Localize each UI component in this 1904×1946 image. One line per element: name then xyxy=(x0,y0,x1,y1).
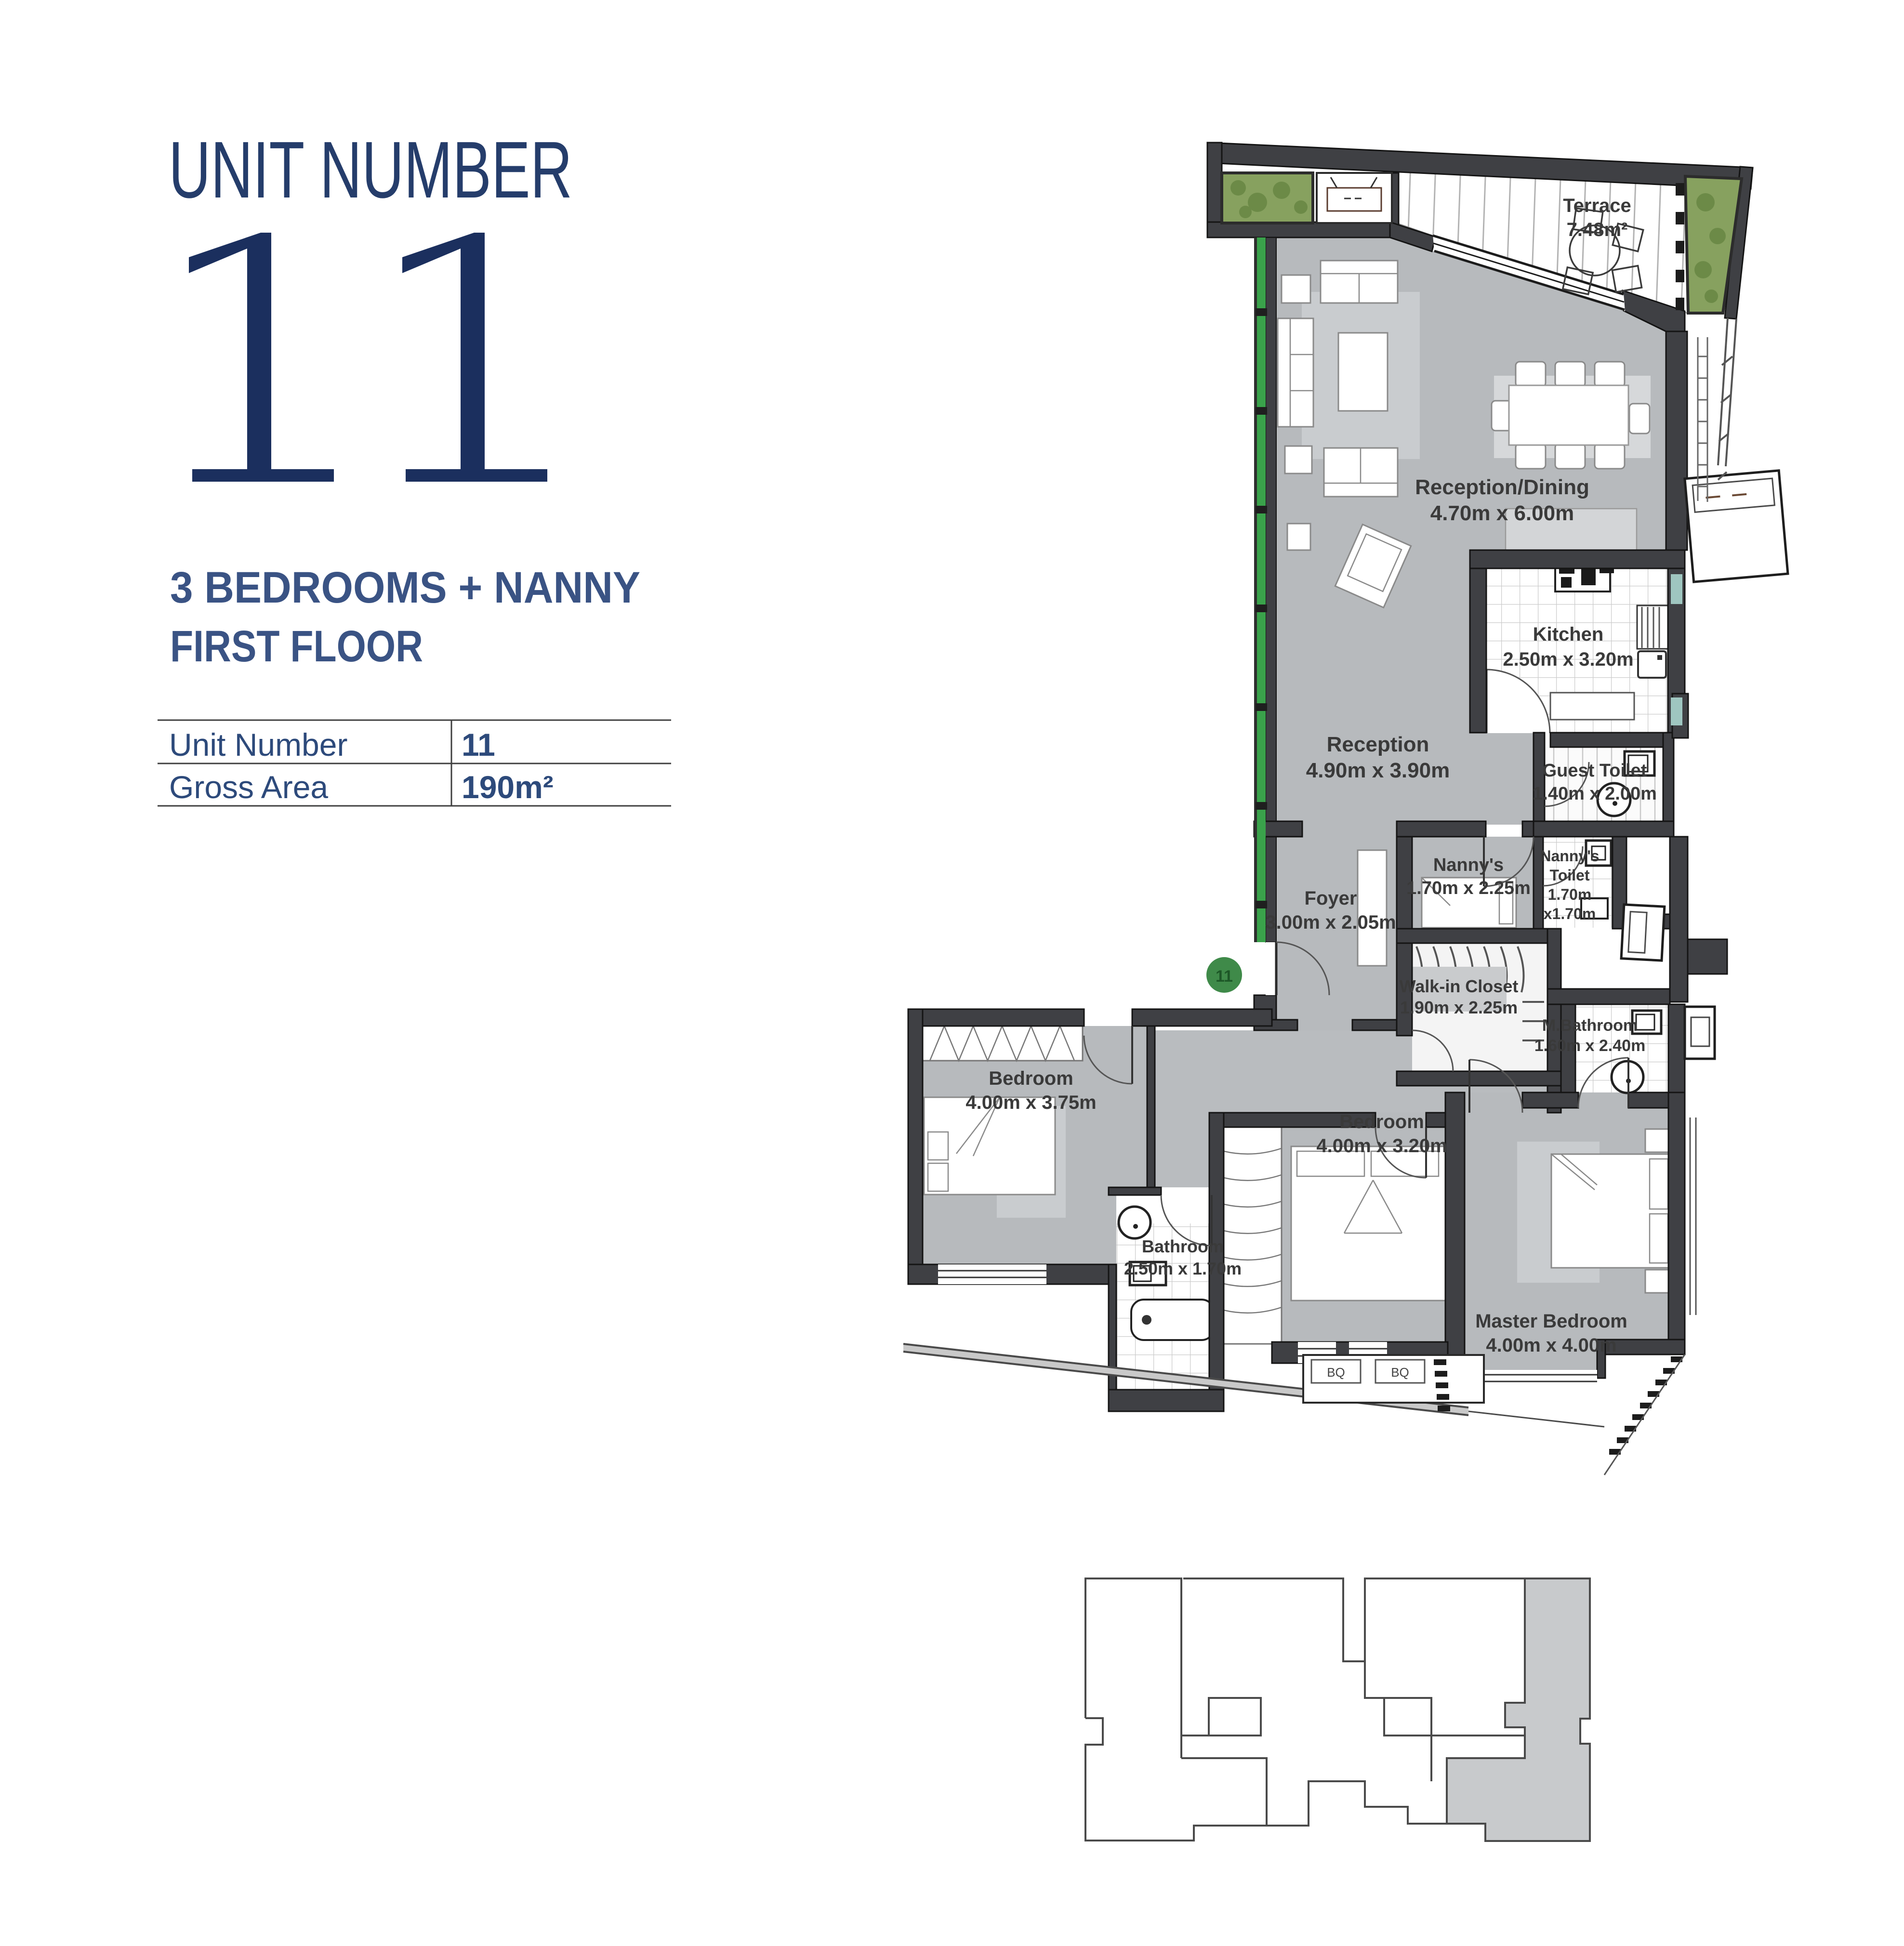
svg-text:Nanny's: Nanny's xyxy=(1433,855,1504,875)
svg-text:4.00m x 4.00m: 4.00m x 4.00m xyxy=(1486,1335,1616,1356)
svg-text:Kitchen: Kitchen xyxy=(1533,624,1604,645)
svg-text:Nanny's: Nanny's xyxy=(1540,847,1599,865)
svg-text:1.70m x 2.25m: 1.70m x 2.25m xyxy=(1406,878,1531,898)
svg-text:7.48m²: 7.48m² xyxy=(1567,219,1628,240)
svg-text:Reception: Reception xyxy=(1327,733,1429,756)
svg-text:BQ: BQ xyxy=(1391,1365,1409,1380)
svg-text:Walk-in Closet: Walk-in Closet xyxy=(1400,976,1519,996)
svg-text:Bedroom: Bedroom xyxy=(989,1068,1073,1089)
svg-text:Toilet: Toilet xyxy=(1550,867,1590,884)
svg-text:BQ: BQ xyxy=(1327,1365,1345,1380)
svg-text:Reception/Dining: Reception/Dining xyxy=(1415,475,1589,499)
svg-text:4.90m x 3.90m: 4.90m x 3.90m xyxy=(1306,759,1450,782)
svg-text:1.70m: 1.70m xyxy=(1548,886,1592,903)
svg-text:1.90m x 2.25m: 1.90m x 2.25m xyxy=(1400,998,1518,1017)
svg-text:3 BEDROOMS + NANNY: 3 BEDROOMS + NANNY xyxy=(170,563,640,612)
svg-text:Bathroom: Bathroom xyxy=(1142,1236,1224,1256)
svg-text:4.70m x 6.00m: 4.70m x 6.00m xyxy=(1430,501,1574,525)
svg-text:1.40m x 2.00m: 1.40m x 2.00m xyxy=(1533,784,1657,804)
svg-text:190m²: 190m² xyxy=(462,769,554,805)
svg-text:11: 11 xyxy=(462,727,495,763)
svg-text:4.00m x 3.20m: 4.00m x 3.20m xyxy=(1316,1135,1447,1157)
svg-text:UNIT NUMBER: UNIT NUMBER xyxy=(169,125,572,215)
svg-text:Foyer: Foyer xyxy=(1305,888,1357,909)
svg-text:11: 11 xyxy=(1216,967,1233,986)
svg-text:M.Bathroom: M.Bathroom xyxy=(1542,1016,1638,1035)
svg-text:FIRST FLOOR: FIRST FLOOR xyxy=(170,622,423,671)
svg-text:Gross Area: Gross Area xyxy=(169,769,328,805)
svg-text:x1.70m: x1.70m xyxy=(1544,905,1596,922)
svg-text:Master Bedroom: Master Bedroom xyxy=(1475,1311,1627,1332)
svg-text:3.00m x 2.05m: 3.00m x 2.05m xyxy=(1265,912,1396,933)
svg-text:Unit Number: Unit Number xyxy=(169,727,347,763)
svg-text:Guest Toilet: Guest Toilet xyxy=(1543,761,1647,781)
svg-text:Terrace: Terrace xyxy=(1563,195,1631,216)
svg-text:2.50m x 1.70m: 2.50m x 1.70m xyxy=(1124,1259,1242,1278)
svg-text:4.00m x 3.75m: 4.00m x 3.75m xyxy=(965,1092,1096,1113)
svg-text:Bedroom: Bedroom xyxy=(1339,1111,1424,1132)
svg-text:1.60m x 2.40m: 1.60m x 2.40m xyxy=(1534,1037,1646,1055)
svg-text:2.50m x 3.20m: 2.50m x 3.20m xyxy=(1503,649,1633,670)
